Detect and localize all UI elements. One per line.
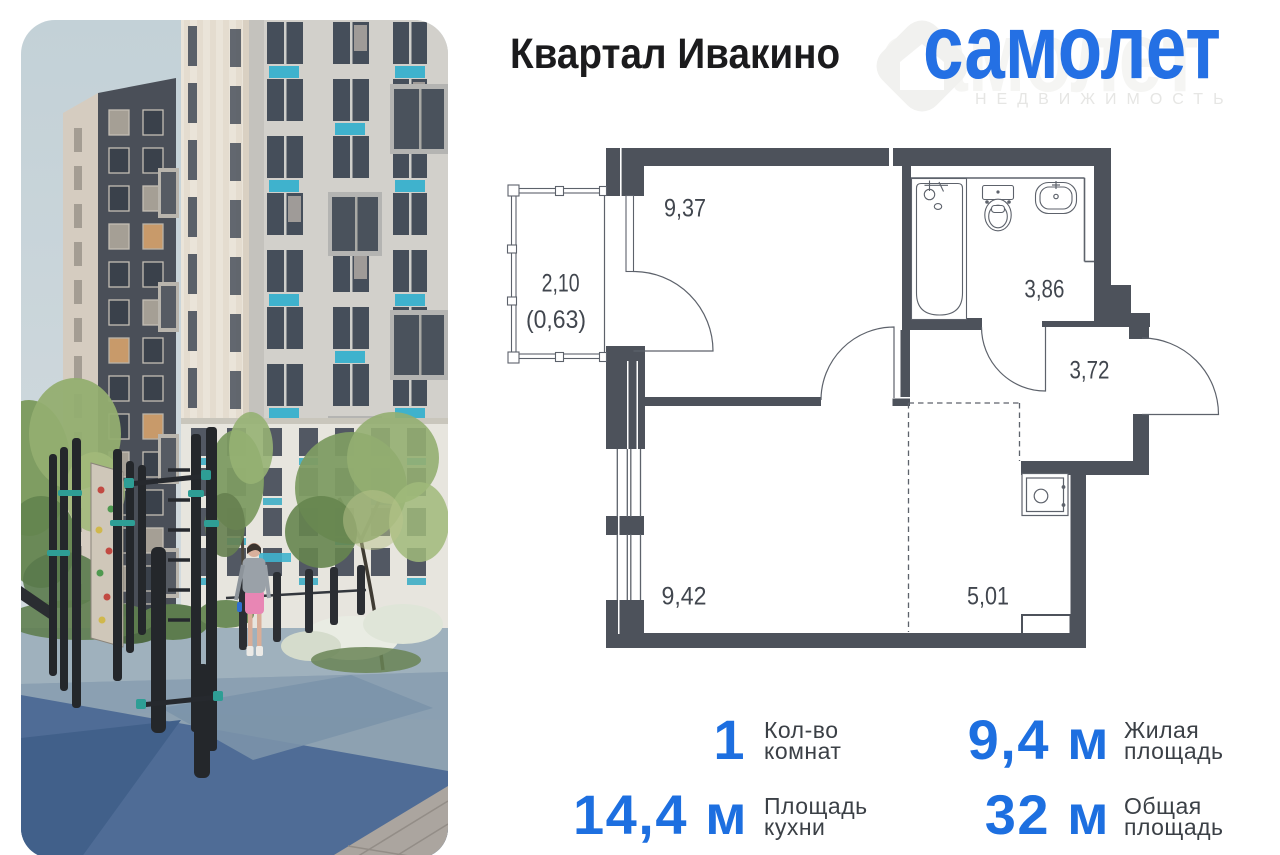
svg-text:3,72: 3,72 <box>1070 357 1110 385</box>
svg-text:5,01: 5,01 <box>967 583 1009 611</box>
svg-text:3,86: 3,86 <box>1024 276 1064 304</box>
svg-text:9,37: 9,37 <box>664 195 706 223</box>
svg-text:9,42: 9,42 <box>662 583 707 611</box>
svg-text:2,10: 2,10 <box>542 270 580 298</box>
svg-text:(0,63): (0,63) <box>526 306 586 334</box>
